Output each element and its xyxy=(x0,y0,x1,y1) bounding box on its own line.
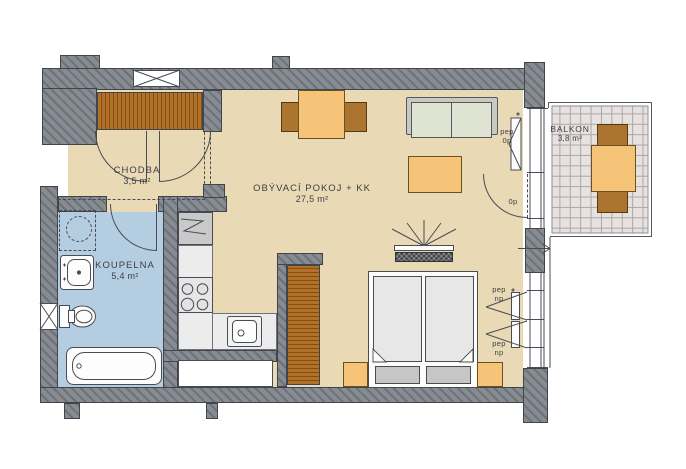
room-name: BALKON xyxy=(550,124,589,134)
room-label-bathroom: KOUPELNA 5,4 m² xyxy=(95,260,155,282)
hall-wardrobe xyxy=(97,92,203,130)
room-area: 27,5 m² xyxy=(253,194,371,205)
wall-partition-vertical xyxy=(277,253,287,387)
wall-pier-top-right xyxy=(524,62,545,108)
balcony-table xyxy=(591,145,636,192)
room-area: 3,8 m² xyxy=(550,134,589,143)
wall-upper-left-block xyxy=(42,88,97,145)
fridge xyxy=(178,212,213,245)
wall-top xyxy=(42,68,540,90)
room-label-living: OBÝVACÍ POKOJ + KK 27,5 m² xyxy=(253,183,371,205)
wall-bathroom-left xyxy=(40,186,58,403)
room-label-hall: CHODBA 3,5 m² xyxy=(114,165,161,187)
room-name: CHODBA xyxy=(114,165,161,176)
bedroom-wardrobe xyxy=(287,265,320,385)
kitchen-window xyxy=(178,360,273,387)
wall-bathroom-kitchen xyxy=(163,196,178,403)
nightstand-left xyxy=(343,362,368,387)
kitchen-counter-horizontal xyxy=(212,313,277,350)
wall-partition-top xyxy=(277,253,323,265)
hall-bottom-dash xyxy=(58,199,205,200)
pillow-right xyxy=(426,366,471,384)
balcony-door-closed-dash xyxy=(527,174,528,218)
room-name: KOUPELNA xyxy=(95,260,155,271)
pillow-left xyxy=(375,366,420,384)
shaft-box-bathroom xyxy=(40,303,58,330)
wall-hall-living-stub-top xyxy=(203,90,222,132)
opening-label-window-2: pep np xyxy=(492,340,505,357)
dining-table xyxy=(298,90,345,139)
hall-opening-dash-1 xyxy=(204,132,205,184)
stove xyxy=(178,277,213,313)
bathroom-door-leaf xyxy=(156,204,157,251)
room-area: 5,4 m² xyxy=(95,271,155,282)
wall-hall-living-stub-bottom xyxy=(203,184,225,198)
opening-label-balcony-window: pep 0p xyxy=(500,128,513,145)
wall-mid-right xyxy=(525,228,545,273)
floor-plan: CHODBA 3,5 m² KOUPELNA 5,4 m² OBÝVACÍ PO… xyxy=(0,0,686,469)
sofa-cushion-divider xyxy=(451,102,452,138)
mattress-right xyxy=(425,276,474,362)
wall-protrusion-bottom-2 xyxy=(206,403,218,419)
wall-pier-bottom-right xyxy=(523,368,548,423)
wall-protrusion-top-left xyxy=(60,55,100,69)
opening-label-balcony-door: 0p xyxy=(509,198,518,207)
opening-label-window-1: pep np xyxy=(492,286,505,303)
room-name: OBÝVACÍ POKOJ + KK xyxy=(253,183,371,194)
nightstand-right xyxy=(477,362,503,387)
hall-opening-dash-2 xyxy=(210,132,211,184)
coffee-table xyxy=(408,156,462,193)
tv-screen xyxy=(395,252,453,262)
room-area: 3,5 m² xyxy=(114,176,161,187)
wall-protrusion-top-mid xyxy=(272,56,290,69)
washing-machine-drum-icon xyxy=(66,216,92,242)
wall-bottom xyxy=(40,387,540,403)
shaft-box-top xyxy=(133,70,180,87)
mattress-left xyxy=(373,276,422,362)
room-label-balcony: BALKON 3,8 m² xyxy=(550,124,589,143)
wall-protrusion-bottom-1 xyxy=(64,403,80,419)
